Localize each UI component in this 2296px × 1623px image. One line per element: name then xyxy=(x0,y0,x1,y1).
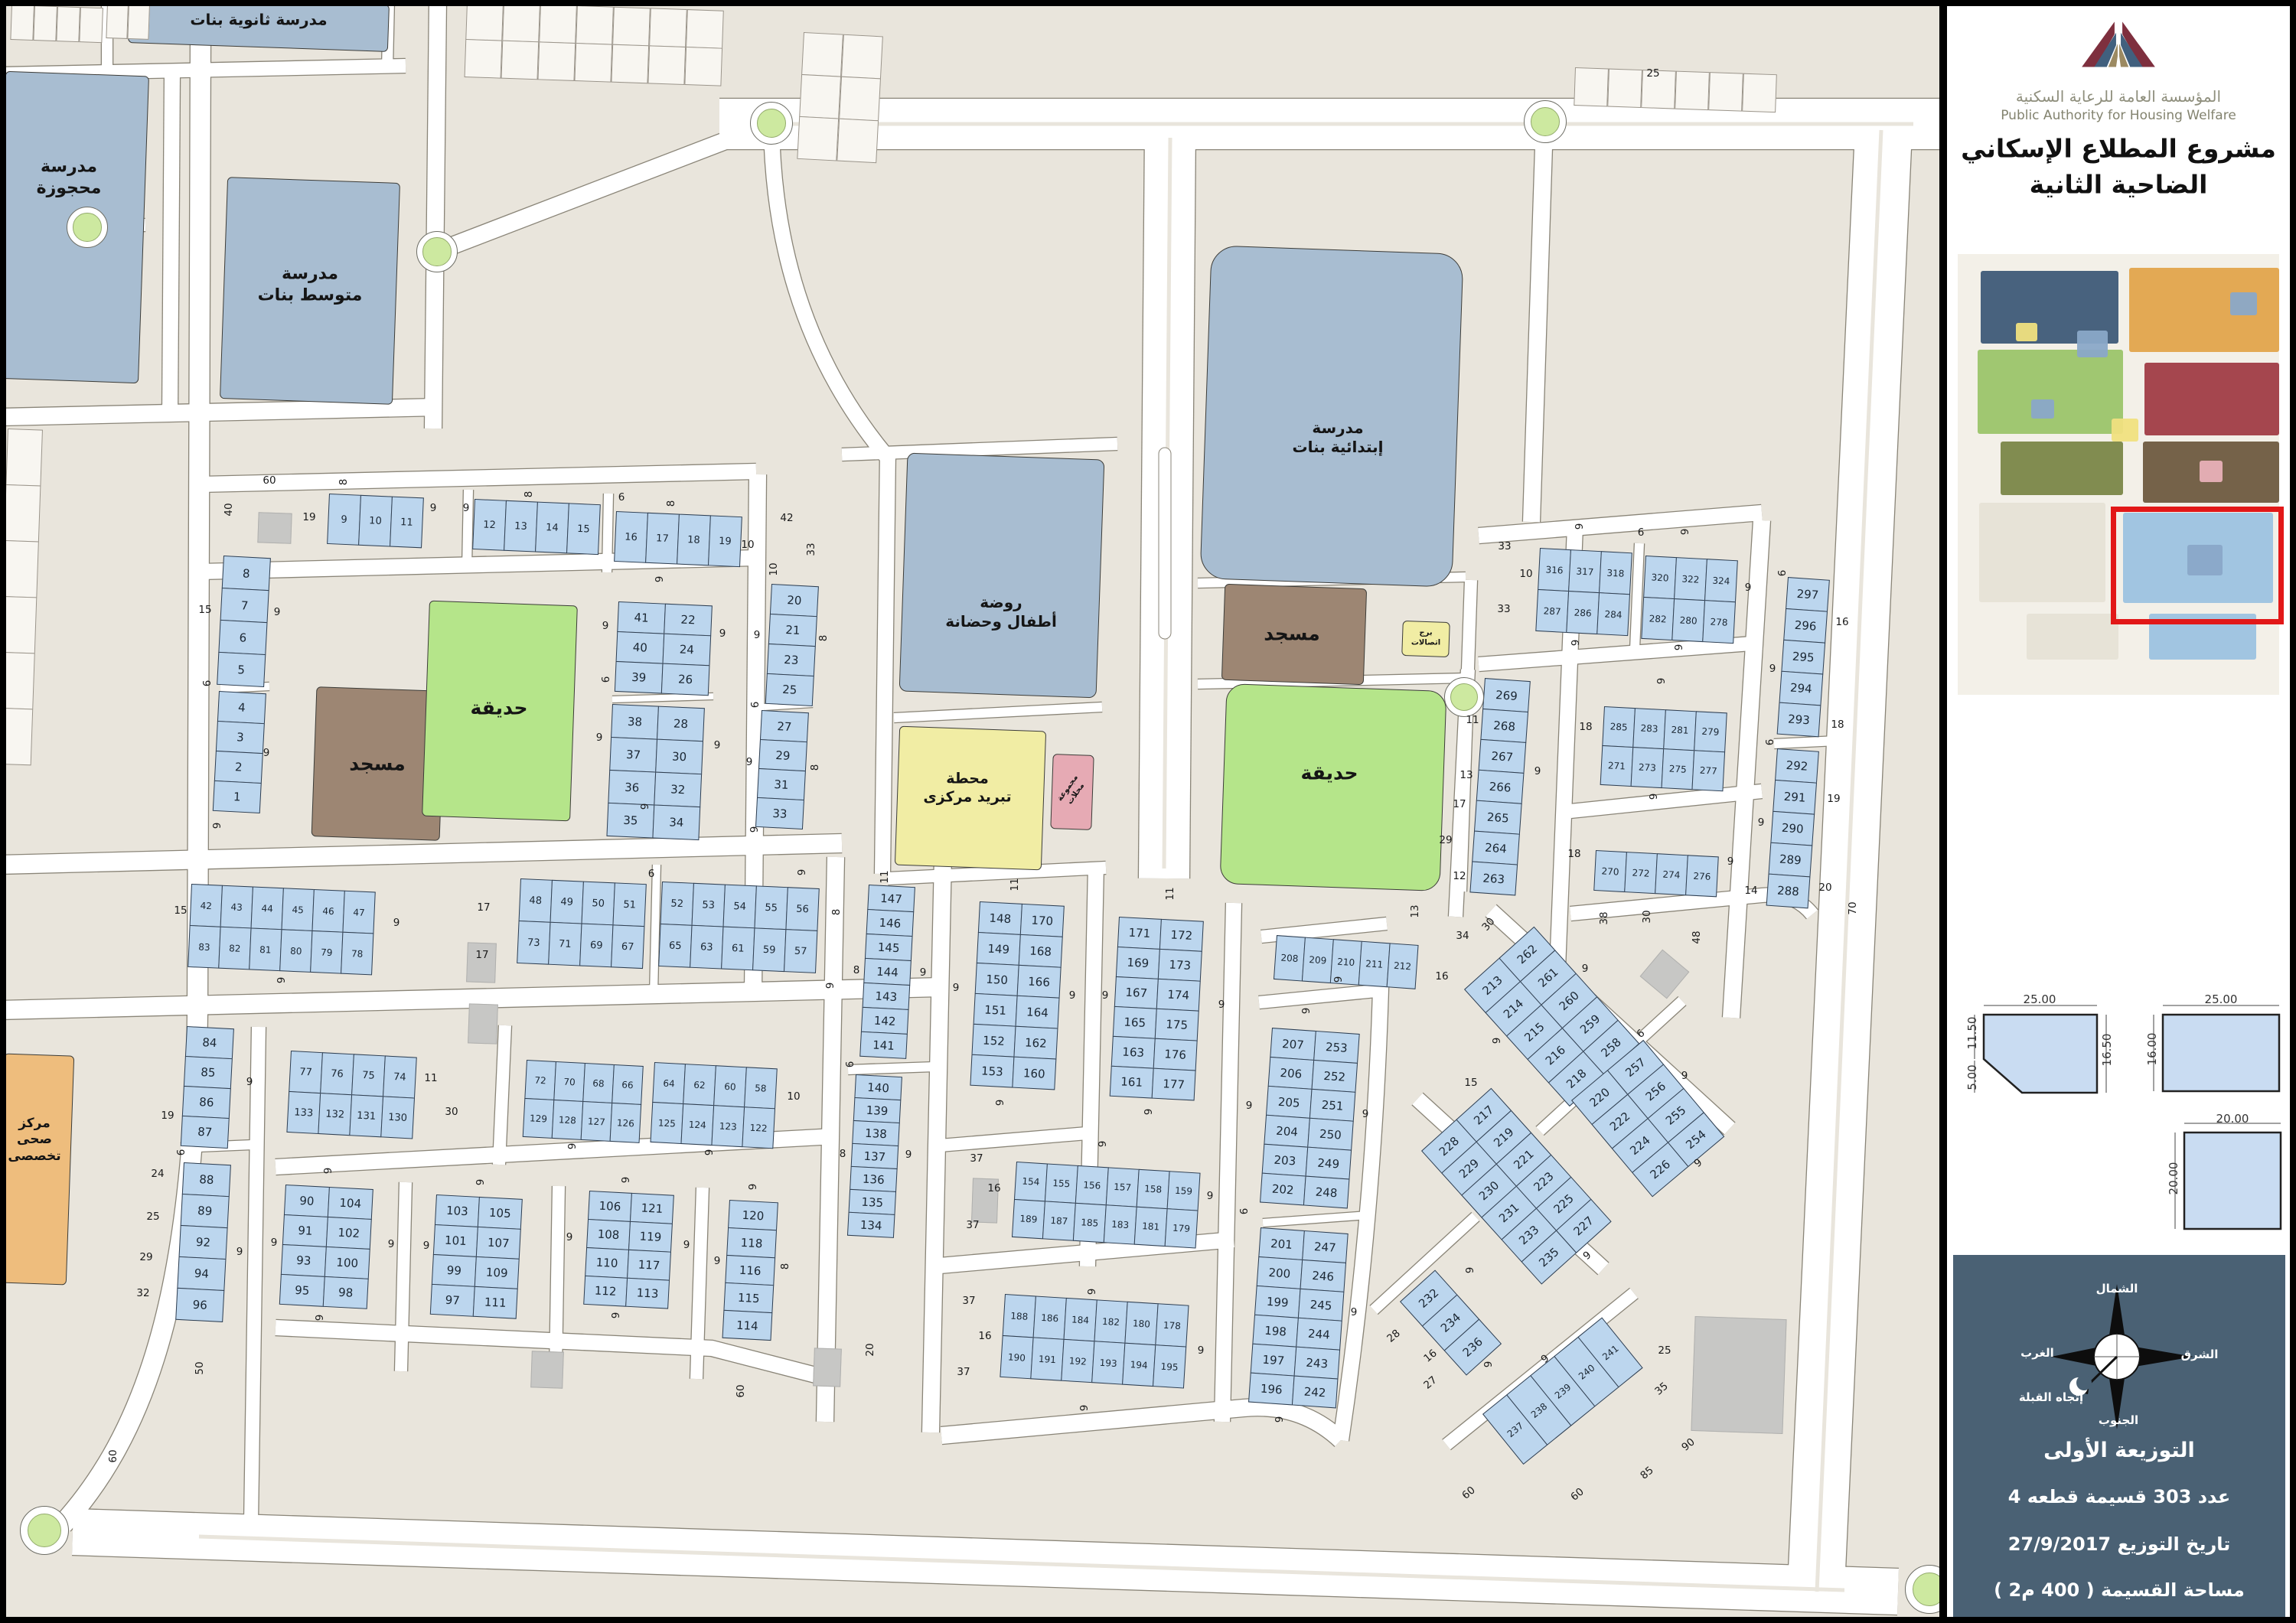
map-dimension-label: 60 xyxy=(1568,1485,1586,1503)
plot-193: 193 xyxy=(1091,1341,1125,1384)
plot-316: 316 xyxy=(1538,548,1571,592)
plot-87: 87 xyxy=(181,1116,230,1149)
map-dimension-label: 30 xyxy=(1479,915,1497,933)
plot-block: 16171819 xyxy=(614,511,742,567)
map-dimension-label: 6 xyxy=(648,868,655,880)
map-dimension-label: 60 xyxy=(735,1384,747,1397)
map-dimension-label: 9 xyxy=(1274,1416,1286,1423)
plot-block: 27293133 xyxy=(755,710,809,829)
plot-17: 17 xyxy=(645,513,680,565)
site-plan-map: مدرسة محجوزةمدرسة ثانوية بناتمدرسة متوسط… xyxy=(6,6,1939,1617)
plot-318: 318 xyxy=(1599,551,1632,595)
substation xyxy=(468,1003,498,1044)
plot-119: 119 xyxy=(628,1221,673,1253)
plot-253: 253 xyxy=(1313,1031,1360,1064)
plot-108: 108 xyxy=(586,1219,631,1250)
vacant-plot xyxy=(6,429,43,487)
plot-283: 283 xyxy=(1632,708,1666,749)
plot-80: 80 xyxy=(279,929,312,973)
plot-block: 8765 xyxy=(217,556,271,687)
map-dimension-label: 25 xyxy=(146,1211,159,1223)
vacant-plot xyxy=(647,45,686,85)
map-dimension-label: 9 xyxy=(1758,816,1765,829)
plot-26: 26 xyxy=(661,663,710,696)
plot-113: 113 xyxy=(625,1278,670,1309)
map-dimension-label: 9 xyxy=(714,1255,721,1267)
map-dimension-label: 9 xyxy=(393,917,400,929)
plot-block: 285283281279271273275277 xyxy=(1600,706,1727,791)
plot-2: 2 xyxy=(214,751,263,784)
vacant-plot xyxy=(839,77,881,122)
map-dimension-label: 9 xyxy=(423,1240,430,1252)
vacant-plot-group xyxy=(1574,67,1777,112)
plot-189: 189 xyxy=(1012,1199,1045,1239)
plot-area-line: مساحة القسيمة ( 400 م2 ) xyxy=(1953,1579,2285,1601)
plot-59: 59 xyxy=(752,927,786,972)
plot-250: 250 xyxy=(1307,1118,1354,1151)
plot-280: 280 xyxy=(1671,598,1705,642)
map-dimension-label: 9 xyxy=(322,1168,334,1175)
plot-320: 320 xyxy=(1643,556,1677,599)
lot-type-diagrams xyxy=(1947,6,2290,1255)
map-dimension-label: 9 xyxy=(1581,1249,1594,1263)
vacant-plot xyxy=(1675,71,1710,111)
plot-297: 297 xyxy=(1786,577,1830,612)
plot-270: 270 xyxy=(1593,850,1627,892)
plot-284: 284 xyxy=(1596,592,1630,636)
plot-281: 281 xyxy=(1663,709,1697,751)
plot-120: 120 xyxy=(728,1200,778,1230)
map-dimension-label: 37 xyxy=(970,1152,983,1165)
plot-192: 192 xyxy=(1061,1339,1094,1383)
map-dimension-label: 20 xyxy=(864,1343,876,1356)
map-dimension-label: 9 xyxy=(211,823,223,829)
plot-201: 201 xyxy=(1258,1227,1305,1260)
lot-dimension-label: 25.00 xyxy=(2205,992,2238,1006)
vacant-plot-group xyxy=(106,6,150,40)
plot-97: 97 xyxy=(430,1284,475,1317)
plot-179: 179 xyxy=(1165,1208,1199,1248)
lot-dimension-label: 16.00 xyxy=(2145,1033,2159,1066)
plot-291: 291 xyxy=(1773,780,1817,815)
landmark-label-mosque-east: مسجد xyxy=(1264,621,1319,645)
map-dimension-label: 37 xyxy=(966,1219,979,1231)
plot-count-line: عدد 303 قسيمة قطعه 4 xyxy=(1953,1486,2285,1507)
plot-292: 292 xyxy=(1775,748,1819,784)
plot-69: 69 xyxy=(579,924,613,968)
map-dimension-label: 6 xyxy=(1776,570,1789,577)
roundabout xyxy=(1444,677,1484,717)
map-dimension-label: 9 xyxy=(748,826,761,833)
plot-74: 74 xyxy=(383,1055,417,1098)
plot-249: 249 xyxy=(1306,1147,1352,1180)
plot-36: 36 xyxy=(608,770,656,806)
map-dimension-label: 60 xyxy=(107,1449,119,1462)
plot-83: 83 xyxy=(188,925,220,969)
map-dimension-label: 9 xyxy=(953,982,960,994)
map-dimension-label: 9 xyxy=(388,1238,395,1250)
plot-162: 162 xyxy=(1013,1026,1058,1060)
vacant-plot xyxy=(6,540,39,598)
plot-block: 316317318287286284 xyxy=(1535,548,1632,636)
map-dimension-label: 6 xyxy=(844,1061,856,1068)
map-dimension-label: 15 xyxy=(174,904,187,917)
lot-dimension-label: 20.00 xyxy=(2167,1162,2180,1195)
plot-107: 107 xyxy=(476,1227,521,1260)
vacant-plot-group xyxy=(10,6,103,43)
plot-200: 200 xyxy=(1257,1256,1303,1289)
roundabout xyxy=(1905,1565,1939,1614)
plot-64: 64 xyxy=(652,1062,686,1104)
map-dimension-label: 42 xyxy=(780,512,793,524)
vacant-plot xyxy=(539,6,577,44)
plot-3: 3 xyxy=(216,721,265,754)
vacant-plot-group xyxy=(465,6,724,86)
plot-102: 102 xyxy=(326,1217,372,1250)
plot-61: 61 xyxy=(721,927,755,971)
plot-172: 172 xyxy=(1159,919,1204,952)
plot-46: 46 xyxy=(311,889,344,933)
plot-263: 263 xyxy=(1469,861,1518,895)
map-dimension-label: 16 xyxy=(987,1182,1000,1194)
map-dimension-label: 11 xyxy=(879,870,891,883)
plot-176: 176 xyxy=(1153,1038,1198,1071)
vacant-plot xyxy=(106,6,129,39)
plot-19: 19 xyxy=(708,515,742,567)
plot-45: 45 xyxy=(281,888,314,931)
landmark-label-park-west: حديقة xyxy=(471,696,528,719)
plot-152: 152 xyxy=(971,1024,1016,1058)
plot-7: 7 xyxy=(220,588,269,623)
map-dimension-label: 9 xyxy=(1198,1344,1205,1357)
plot-block: 292291290289288 xyxy=(1766,748,1819,908)
map-dimension-label: 8 xyxy=(665,500,677,507)
plot-168: 168 xyxy=(1019,934,1063,968)
plot-block: 201247200246199245198244197243196242 xyxy=(1248,1227,1349,1408)
plot-53: 53 xyxy=(692,883,726,927)
plot-252: 252 xyxy=(1311,1060,1358,1093)
map-dimension-label: 9 xyxy=(824,983,837,989)
map-dimension-label: 90 xyxy=(1679,1436,1697,1453)
plot-167: 167 xyxy=(1114,976,1159,1009)
plot-126: 126 xyxy=(610,1103,642,1143)
map-dimension-label: 19 xyxy=(1827,793,1840,805)
plot-49: 49 xyxy=(550,880,584,924)
map-dimension-label: 9 xyxy=(610,1312,622,1319)
vacant-plot xyxy=(502,6,540,42)
plot-block: 120118116115114 xyxy=(722,1200,778,1341)
plot-264: 264 xyxy=(1472,831,1520,865)
plot-186: 186 xyxy=(1033,1295,1067,1339)
landmark-label-school-primary-girls: مدرسة إبتدائية بنات xyxy=(1293,419,1384,457)
map-dimension-label: 9 xyxy=(1207,1190,1214,1202)
map-dimension-label: 9 xyxy=(1648,794,1660,800)
plot-42: 42 xyxy=(190,884,223,927)
plot-25: 25 xyxy=(765,673,814,706)
plot-206: 206 xyxy=(1268,1057,1315,1090)
map-dimension-label: 9 xyxy=(1582,963,1589,975)
plot-248: 248 xyxy=(1303,1176,1350,1209)
plot-75: 75 xyxy=(351,1054,386,1097)
map-dimension-label: 9 xyxy=(602,620,609,632)
plot-63: 63 xyxy=(690,925,723,970)
map-dimension-label: 20 xyxy=(1818,882,1831,894)
plot-212: 212 xyxy=(1387,943,1419,989)
plot-156: 156 xyxy=(1075,1165,1109,1205)
map-dimension-label: 9 xyxy=(1351,1306,1358,1318)
plot-295: 295 xyxy=(1781,640,1825,675)
plot-139: 139 xyxy=(853,1097,902,1123)
plot-129: 129 xyxy=(523,1098,555,1139)
plot-71: 71 xyxy=(548,922,582,966)
plot-block: 188186184182180178190191192193194195 xyxy=(1000,1294,1189,1389)
plot-127: 127 xyxy=(581,1101,613,1142)
map-dimension-label: 70 xyxy=(1847,901,1859,914)
map-dimension-label: 9 xyxy=(714,739,721,751)
map-dimension-label: 10 xyxy=(768,562,780,575)
vacant-plot xyxy=(797,116,839,161)
plot-block: 4849505173716967 xyxy=(517,878,647,969)
map-dimension-label: 18 xyxy=(1831,719,1844,731)
distribution-info-panel: الشمال الشرق الغرب الجنوب إتجاه القبلة ا… xyxy=(1953,1255,2285,1617)
roundabout xyxy=(1524,100,1567,143)
map-dimension-label: 8 xyxy=(809,764,821,771)
plot-block: 148170149168150166151164152162153160 xyxy=(970,901,1064,1090)
plot-24: 24 xyxy=(662,634,711,666)
plot-78: 78 xyxy=(341,932,373,976)
lot-dimension-label: 16.50 xyxy=(2100,1034,2114,1067)
plot-block: 232234236 xyxy=(1400,1270,1502,1376)
map-dimension-label: 9 xyxy=(430,502,437,514)
plot-163: 163 xyxy=(1111,1036,1156,1069)
compass-west-label: الغرب xyxy=(2020,1346,2054,1360)
vacant-plot xyxy=(10,6,34,41)
map-dimension-label: 9 xyxy=(1482,1361,1495,1368)
plot-294: 294 xyxy=(1779,671,1823,706)
plot-165: 165 xyxy=(1113,1006,1157,1039)
map-dimension-label: 9 xyxy=(246,1076,253,1088)
plot-290: 290 xyxy=(1770,811,1815,846)
plot-243: 243 xyxy=(1294,1347,1341,1380)
plot-12: 12 xyxy=(472,499,507,551)
plot-30: 30 xyxy=(655,739,703,775)
plot-247: 247 xyxy=(1302,1230,1349,1263)
plot-133: 133 xyxy=(286,1091,321,1134)
plot-181: 181 xyxy=(1134,1207,1168,1247)
map-dimension-label: 9 xyxy=(747,1184,759,1191)
plot-21: 21 xyxy=(768,614,817,647)
map-dimension-label: 9 xyxy=(1143,1109,1155,1116)
map-dimension-label: 27 xyxy=(1421,1374,1439,1391)
roundabout xyxy=(67,207,108,248)
vacant-plot xyxy=(6,484,41,543)
plot-11: 11 xyxy=(390,497,424,549)
plot-271: 271 xyxy=(1600,745,1634,787)
plot-8: 8 xyxy=(222,556,271,591)
plot-block: 20212325 xyxy=(765,584,819,706)
plot-159: 159 xyxy=(1167,1171,1201,1211)
map-dimension-label: 14 xyxy=(1744,885,1757,897)
plot-32: 32 xyxy=(654,772,702,808)
plot-block: 12131415 xyxy=(472,499,601,555)
map-dimension-label: 11 xyxy=(424,1072,437,1084)
plot-246: 246 xyxy=(1300,1260,1346,1292)
map-dimension-label: 33 xyxy=(1497,603,1510,615)
map-dimension-label: 9 xyxy=(1086,1289,1098,1295)
lot-dimension-label: 5.00 xyxy=(1965,1064,1979,1090)
plot-158: 158 xyxy=(1137,1169,1170,1209)
map-dimension-label: 24 xyxy=(151,1168,164,1180)
plot-block: 84858687 xyxy=(181,1026,234,1149)
map-dimension-label: 9 xyxy=(1491,1038,1503,1045)
vacant-plot xyxy=(611,44,649,84)
vacant-plot xyxy=(799,74,841,119)
plot-86: 86 xyxy=(182,1086,231,1119)
plot-94: 94 xyxy=(177,1256,226,1291)
map-dimension-label: 17 xyxy=(477,901,490,914)
plot-242: 242 xyxy=(1292,1376,1339,1409)
vacant-plot xyxy=(79,7,103,43)
plot-48: 48 xyxy=(519,878,553,923)
plot-134: 134 xyxy=(847,1212,895,1238)
landmark-label-school-secondary-girls: مدرسة ثانوية بنات xyxy=(190,11,327,30)
map-dimension-label: 9 xyxy=(1300,1008,1313,1015)
plot-block: 171172169173167174165175163176161177 xyxy=(1110,917,1204,1100)
plot-164: 164 xyxy=(1015,996,1059,1029)
map-dimension-label: 16 xyxy=(1435,970,1448,983)
map-dimension-label: 6 xyxy=(175,1149,188,1156)
plot-289: 289 xyxy=(1768,842,1812,878)
plot-130: 130 xyxy=(380,1096,415,1139)
map-dimension-label: 9 xyxy=(620,1177,632,1184)
plot-180: 180 xyxy=(1124,1302,1158,1345)
plot-197: 197 xyxy=(1251,1344,1297,1377)
map-dimension-label: 9 xyxy=(596,732,603,744)
plot-block: 8889929496 xyxy=(175,1162,231,1322)
map-dimension-label: 9 xyxy=(314,1315,326,1322)
map-dimension-label: 29 xyxy=(1439,834,1452,846)
vacant-plot xyxy=(837,119,879,164)
map-dimension-label: 11 xyxy=(1164,887,1176,900)
vacant-plot xyxy=(6,652,35,710)
plot-10: 10 xyxy=(358,495,393,547)
plot-273: 273 xyxy=(1631,747,1665,788)
plot-141: 141 xyxy=(859,1031,908,1059)
plot-block: 297296295294293 xyxy=(1777,577,1830,737)
map-dimension-label: 9 xyxy=(1692,1156,1705,1170)
plot-20: 20 xyxy=(770,584,819,617)
plot-282: 282 xyxy=(1641,597,1675,640)
substation xyxy=(1640,950,1690,999)
landmark-label-mosque-west: مسجد xyxy=(349,751,405,775)
plot-122: 122 xyxy=(742,1106,775,1149)
map-dimension-label: 13 xyxy=(1459,769,1473,781)
plot-151: 151 xyxy=(974,993,1018,1027)
landmark-health-center xyxy=(6,1053,74,1285)
map-dimension-label: 9 xyxy=(639,803,651,810)
map-dimension-label: 11 xyxy=(1466,714,1479,726)
plot-65: 65 xyxy=(658,924,692,968)
plot-109: 109 xyxy=(475,1256,520,1289)
roundabout xyxy=(750,102,793,145)
map-dimension-label: 6 xyxy=(600,676,612,683)
plot-79: 79 xyxy=(310,930,343,974)
plot-269: 269 xyxy=(1482,678,1531,712)
plot-182: 182 xyxy=(1094,1299,1127,1343)
map-dimension-label: 9 xyxy=(463,502,470,514)
plot-101: 101 xyxy=(433,1224,478,1257)
plot-block: 320322324282280278 xyxy=(1641,556,1738,644)
plot-22: 22 xyxy=(664,604,713,637)
plot-block: 91011 xyxy=(327,494,424,548)
map-dimension-label: 9 xyxy=(719,627,726,640)
plot-51: 51 xyxy=(612,882,646,927)
plot-block: 424344454647838281807978 xyxy=(188,884,376,975)
plot-68: 68 xyxy=(582,1063,615,1103)
plot-block: 72706866129128127126 xyxy=(523,1060,644,1143)
plot-317: 317 xyxy=(1568,549,1602,593)
vacant-plot xyxy=(684,47,722,86)
plot-34: 34 xyxy=(652,804,700,840)
plot-132: 132 xyxy=(318,1093,352,1136)
map-dimension-label: 30 xyxy=(445,1106,458,1118)
plot-13: 13 xyxy=(504,500,538,552)
plot-block: 208209210211212 xyxy=(1274,935,1419,989)
plot-157: 157 xyxy=(1106,1167,1140,1207)
vacant-plot xyxy=(1742,73,1777,113)
map-dimension-label: 9 xyxy=(905,1149,912,1161)
plot-33: 33 xyxy=(755,797,804,829)
plot-block: 154155156157158159189187185183181179 xyxy=(1012,1162,1201,1249)
landmark-school-primary-girls xyxy=(1199,245,1463,587)
plot-41: 41 xyxy=(617,601,666,634)
plot-91: 91 xyxy=(282,1214,328,1247)
plot-265: 265 xyxy=(1474,800,1522,835)
lot-dimension-label: 11.50 xyxy=(1965,1017,1979,1050)
map-dimension-label: 9 xyxy=(1679,529,1691,536)
plot-89: 89 xyxy=(181,1194,230,1228)
plot-166: 166 xyxy=(1017,965,1062,999)
plot-23: 23 xyxy=(767,644,816,676)
lot-dimension-label: 25.00 xyxy=(2024,992,2056,1006)
plot-118: 118 xyxy=(726,1227,777,1258)
map-dimension-label: 9 xyxy=(1078,1405,1091,1412)
plot-112: 112 xyxy=(583,1276,628,1307)
plot-148: 148 xyxy=(978,901,1022,935)
map-dimension-label: 25 xyxy=(1658,1344,1671,1357)
map-dimension-label: 9 xyxy=(654,576,666,583)
plot-267: 267 xyxy=(1479,739,1527,774)
plot-135: 135 xyxy=(849,1189,897,1215)
map-dimension-label: 9 xyxy=(475,1179,487,1186)
plot-123: 123 xyxy=(711,1105,745,1147)
map-dimension-label: 60 xyxy=(1459,1484,1477,1501)
map-dimension-label: 11 xyxy=(1009,878,1021,891)
plot-39: 39 xyxy=(615,661,664,694)
plot-block: 207253206252205251204250203249202248 xyxy=(1260,1028,1360,1208)
plot-56: 56 xyxy=(785,887,819,931)
compass-south-label: الجنوب xyxy=(2099,1413,2138,1427)
plot-117: 117 xyxy=(627,1250,671,1281)
plot-144: 144 xyxy=(863,958,912,986)
map-dimension-label: 13 xyxy=(1409,904,1421,917)
plot-150: 150 xyxy=(975,963,1019,996)
map-dimension-label: 9 xyxy=(920,966,927,979)
plot-40: 40 xyxy=(616,631,665,664)
vacant-plot xyxy=(56,6,80,42)
plot-57: 57 xyxy=(784,929,817,973)
plot-103: 103 xyxy=(435,1194,480,1227)
